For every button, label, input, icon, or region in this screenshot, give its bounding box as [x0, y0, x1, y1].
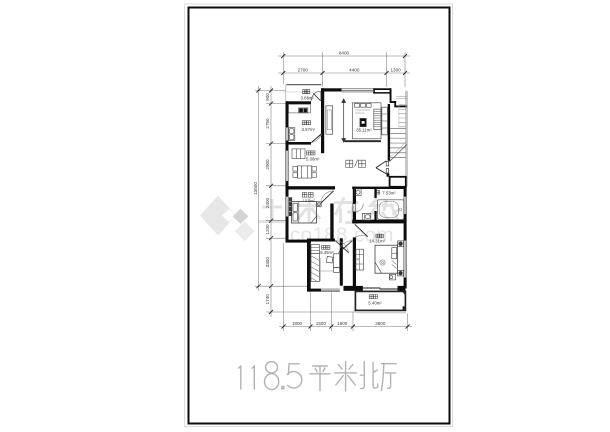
- svg-text:1740: 1740: [265, 294, 270, 305]
- svg-text:2400: 2400: [265, 197, 270, 208]
- svg-text:3600: 3600: [375, 321, 386, 326]
- svg-text:1800: 1800: [337, 321, 348, 326]
- svg-text:13500: 13500: [253, 182, 258, 195]
- svg-text:8400: 8400: [339, 51, 350, 56]
- svg-text:900: 900: [265, 93, 270, 101]
- svg-text:10.0m²: 10.0m²: [303, 199, 316, 203]
- svg-text:14.31m²: 14.31m²: [369, 239, 385, 244]
- svg-text:1500: 1500: [316, 321, 327, 326]
- svg-text:35.11m²: 35.11m²: [356, 127, 372, 132]
- svg-text:1200: 1200: [265, 224, 270, 235]
- svg-text:3.57m²: 3.57m²: [302, 127, 316, 132]
- svg-text:4400: 4400: [349, 67, 360, 72]
- svg-text:3300: 3300: [265, 257, 270, 268]
- svg-text:2700: 2700: [298, 67, 309, 72]
- svg-text:5.40m²: 5.40m²: [368, 300, 382, 305]
- svg-text:2900: 2900: [265, 159, 270, 170]
- svg-text:8.45m²: 8.45m²: [320, 250, 334, 255]
- svg-text:5.06m²: 5.06m²: [306, 156, 320, 161]
- svg-text:3.88m²: 3.88m²: [301, 95, 315, 100]
- svg-text:1300: 1300: [390, 67, 401, 72]
- svg-text:1800: 1800: [292, 321, 303, 326]
- svg-text:2750: 2750: [265, 118, 270, 129]
- svg-text:7.53m²: 7.53m²: [382, 190, 396, 195]
